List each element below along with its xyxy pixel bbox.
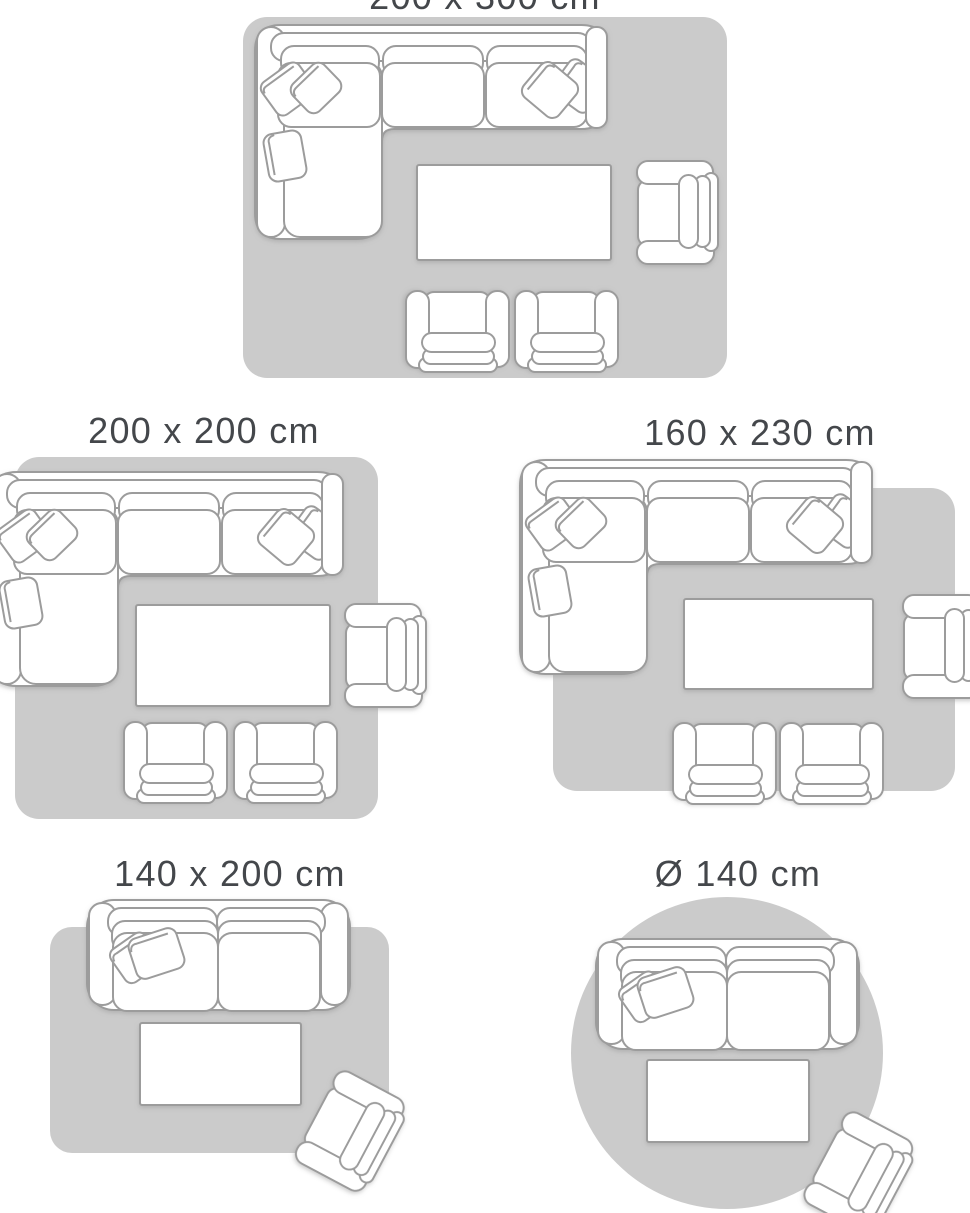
- svg-text:140 x 200 cm: 140 x 200 cm: [114, 853, 346, 894]
- svg-text:200 x 200 cm: 200 x 200 cm: [88, 410, 320, 451]
- svg-text:200 x 300 cm: 200 x 300 cm: [369, 0, 601, 17]
- svg-text:Ø 140 cm: Ø 140 cm: [655, 853, 821, 894]
- svg-text:160 x 230 cm: 160 x 230 cm: [644, 412, 876, 453]
